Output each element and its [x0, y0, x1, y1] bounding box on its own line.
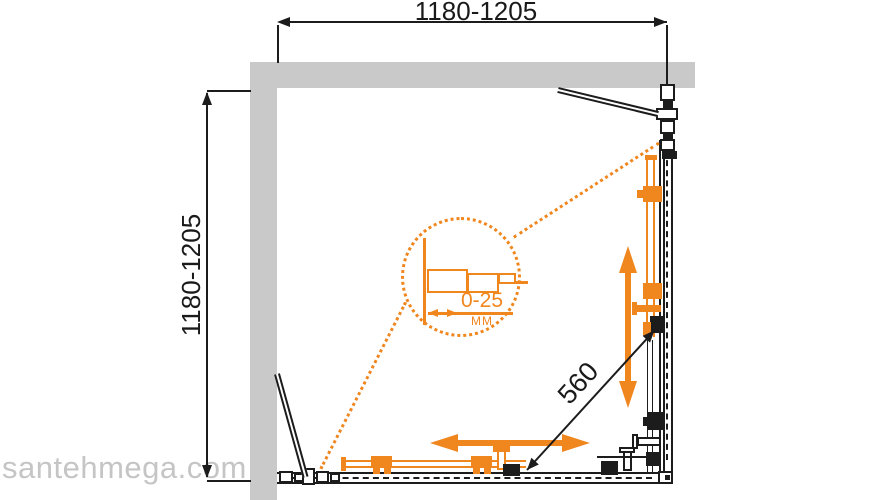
corner-square-pin [665, 475, 670, 480]
slide-arrow-vertical-shaft [625, 272, 631, 382]
dimension-depth-arrow-bottom [202, 465, 212, 478]
corner-fitting [646, 452, 659, 466]
track-right-glass-dashed [666, 150, 668, 460]
sliding-door-bottom-roller-2 [471, 456, 492, 468]
detail-range-label: 0-25 [447, 291, 517, 311]
detail-profile-extension [515, 281, 528, 284]
dimension-depth-extension-top [207, 90, 251, 92]
sliding-door-bottom-roller-2-foot-a [473, 468, 480, 474]
sliding-door-right-cap [645, 155, 657, 160]
wall-bracket-bottom-4 [330, 473, 340, 482]
sliding-door-right-bracket-tab [637, 190, 643, 198]
wall-bracket-right-4 [662, 151, 677, 159]
sliding-door-bottom-roller-2-foot-b [484, 468, 491, 474]
dimension-depth-line [206, 93, 208, 477]
roller-right-lower-knob [643, 417, 649, 426]
track-bottom-glass-dashed [292, 477, 652, 479]
dimension-depth-label: 1180-1205 [179, 145, 203, 405]
detail-dimension-arrow-left [428, 309, 438, 317]
detail-profile-notch [498, 273, 516, 284]
wall-bracket-right-2 [660, 120, 675, 134]
roller-bottom-right [601, 461, 618, 475]
dimension-depth-extension-bottom [207, 480, 251, 482]
handle-bottom-cap [619, 447, 635, 453]
detail-wall-line [423, 238, 426, 325]
dimension-width-label: 1180-1205 [351, 0, 601, 22]
roller-bottom-center [503, 464, 520, 476]
door-panel-top-right-open [557, 87, 659, 117]
dimension-depth-arrow-top [202, 92, 212, 105]
wall-bracket-right-1 [660, 84, 675, 101]
handle-bottom-orange-cap [493, 446, 510, 452]
wall-left [250, 62, 277, 500]
sliding-door-right-tbar-cap [632, 302, 637, 315]
slide-arrow-horizontal-head-right [562, 434, 590, 452]
shower-enclosure-technical-drawing: santehmega.com 1180-1205 1180-1205 [0, 0, 880, 500]
wall-bracket-right-3 [660, 139, 675, 151]
wall-bracket-bottom-1 [279, 471, 293, 483]
handle-right-bar [637, 437, 661, 446]
sliding-door-bottom-roller-1-foot-b [384, 468, 391, 474]
sliding-door-bottom-roller-1-foot-a [373, 468, 380, 474]
sliding-door-right-bracket-2 [643, 283, 662, 299]
roller-right-lower [648, 412, 664, 430]
sliding-door-right-tbar [636, 305, 661, 312]
dimension-width-extension-left [277, 25, 279, 63]
dimension-width-extension-right [666, 25, 668, 88]
dimension-width-line [280, 21, 667, 23]
detail-unit-label: MM [447, 314, 517, 328]
wall-bracket-bottom-3 [316, 471, 329, 483]
sliding-door-bottom-roller-1 [371, 456, 392, 468]
handle-bottom-bar [623, 451, 632, 471]
slide-arrow-vertical-head-up [619, 246, 637, 273]
slide-arrow-horizontal-head-left [430, 434, 458, 452]
slide-arrow-vertical-head-down [619, 381, 637, 408]
detail-leader-bottom-left [319, 302, 407, 470]
sliding-door-right-bracket-1 [643, 186, 662, 202]
door-hinge-top-right [656, 108, 678, 120]
door-panel-bottom-left-open [274, 373, 308, 478]
sliding-door-bottom-cap [341, 457, 346, 471]
wall-top [250, 62, 695, 88]
